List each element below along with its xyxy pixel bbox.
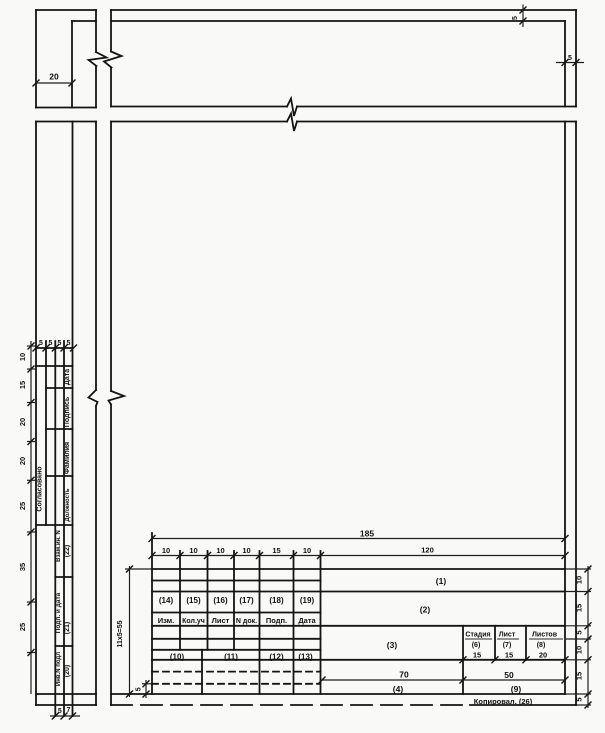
svg-text:Копировал. (26): Копировал. (26) [474, 697, 533, 706]
svg-text:7: 7 [66, 707, 70, 714]
svg-text:11x5=55: 11x5=55 [117, 620, 124, 647]
svg-text:5: 5 [575, 630, 584, 634]
svg-text:10: 10 [575, 576, 584, 584]
svg-text:20: 20 [539, 651, 547, 660]
svg-text:Кол.уч: Кол.уч [182, 618, 205, 625]
svg-text:(9): (9) [511, 684, 522, 694]
svg-text:(4): (4) [393, 684, 404, 694]
svg-text:35: 35 [18, 563, 27, 571]
svg-text:185: 185 [360, 529, 374, 539]
svg-text:(10): (10) [170, 652, 185, 661]
svg-text:25: 25 [18, 502, 27, 510]
svg-text:(1): (1) [436, 576, 447, 586]
svg-text:(18): (18) [269, 596, 284, 605]
svg-text:10: 10 [575, 646, 584, 654]
svg-text:(11): (11) [224, 652, 238, 661]
svg-text:15: 15 [575, 604, 584, 612]
svg-text:Подп. и дата: Подп. и дата [55, 592, 62, 633]
svg-text:Согласовано: Согласовано [37, 466, 44, 511]
svg-text:Взам.ин. N: Взам.ин. N [56, 530, 62, 562]
svg-text:20: 20 [18, 457, 27, 465]
svg-text:(22): (22) [64, 545, 71, 557]
svg-text:5: 5 [568, 55, 572, 62]
svg-text:Инв.N подл: Инв.N подл [56, 652, 62, 686]
svg-text:10: 10 [242, 546, 250, 555]
svg-text:(3): (3) [387, 640, 398, 650]
svg-text:50: 50 [504, 670, 514, 680]
svg-text:(21): (21) [64, 622, 71, 634]
svg-text:Фамилия: Фамилия [64, 442, 71, 474]
svg-text:Должность: Должность [65, 488, 71, 521]
svg-text:5: 5 [39, 340, 43, 347]
svg-text:10: 10 [189, 546, 197, 555]
svg-text:(7): (7) [503, 642, 512, 649]
svg-text:Изм.: Изм. [158, 616, 175, 625]
svg-text:20: 20 [49, 72, 59, 82]
svg-text:70: 70 [399, 670, 409, 680]
svg-text:120: 120 [421, 545, 434, 554]
svg-text:25: 25 [18, 623, 27, 631]
svg-text:15: 15 [505, 651, 513, 660]
svg-text:10: 10 [216, 546, 224, 555]
svg-text:(13): (13) [298, 652, 313, 661]
svg-text:15: 15 [575, 672, 584, 680]
svg-text:(19): (19) [300, 596, 315, 605]
svg-text:(15): (15) [186, 596, 201, 605]
svg-text:(12): (12) [269, 652, 284, 661]
svg-text:Лист: Лист [499, 632, 516, 639]
svg-text:15: 15 [272, 546, 280, 555]
svg-text:5: 5 [512, 16, 519, 20]
svg-text:(16): (16) [213, 596, 228, 605]
svg-text:(2): (2) [420, 605, 431, 615]
svg-text:10: 10 [303, 546, 311, 555]
svg-text:5: 5 [67, 340, 71, 347]
svg-text:5: 5 [58, 340, 62, 347]
svg-text:Листов: Листов [532, 632, 558, 639]
svg-text:(14): (14) [159, 596, 174, 605]
svg-text:20: 20 [18, 418, 27, 426]
svg-text:5: 5 [49, 340, 53, 347]
svg-text:(17): (17) [239, 596, 254, 605]
svg-text:Подп.: Подп. [266, 616, 287, 625]
svg-text:(6): (6) [472, 642, 481, 649]
svg-text:15: 15 [18, 381, 27, 389]
svg-text:5: 5 [136, 687, 143, 691]
svg-text:Лист: Лист [212, 616, 230, 625]
svg-text:N док.: N док. [236, 618, 257, 625]
svg-text:5: 5 [575, 697, 584, 701]
svg-text:15: 15 [473, 651, 481, 660]
svg-text:Дата: Дата [64, 369, 71, 385]
svg-text:(20): (20) [64, 665, 71, 677]
svg-text:Дата: Дата [298, 616, 316, 625]
svg-text:5: 5 [58, 708, 62, 715]
svg-text:(8): (8) [537, 642, 546, 649]
svg-text:Подпись: Подпись [64, 396, 71, 427]
svg-text:10: 10 [18, 353, 27, 361]
svg-text:Стадия: Стадия [465, 632, 490, 639]
svg-text:10: 10 [162, 546, 170, 555]
